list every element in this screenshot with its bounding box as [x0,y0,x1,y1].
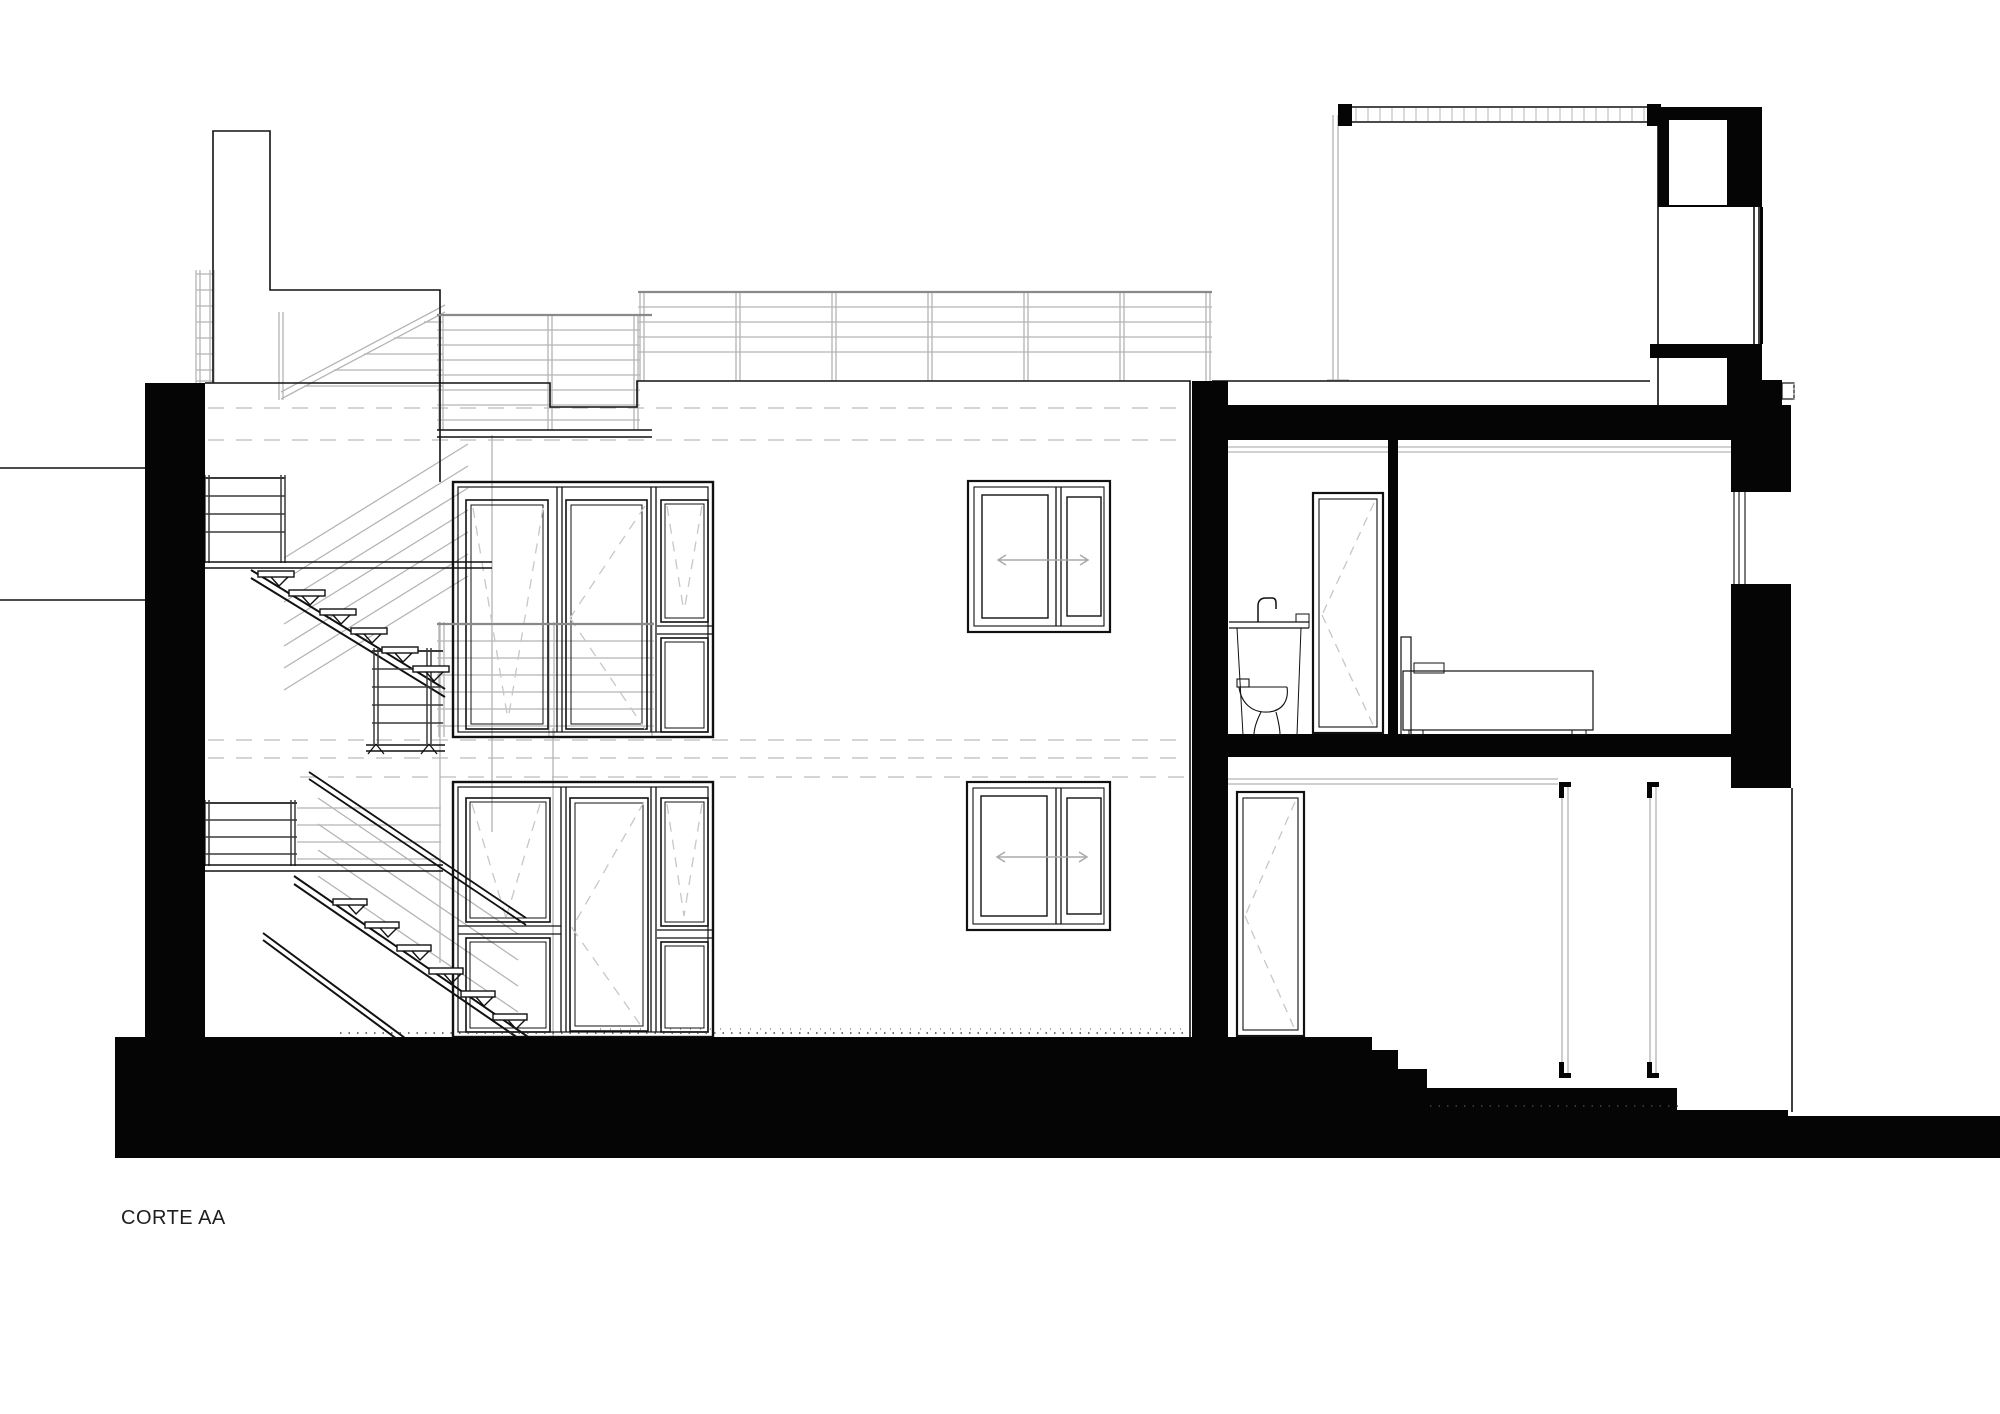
sink [1229,598,1309,735]
lower-landing-railing [205,800,297,866]
sliding-arrow-lower [997,852,1087,862]
ground-door-swing [1245,802,1295,1030]
dashed-level-lines [208,408,1188,777]
upper-volume-band [1650,344,1762,358]
ground-floor-door [1237,792,1304,1036]
drawing-title: CORTE AA [121,1206,226,1230]
balcony-slab [437,430,652,437]
bedroom-floor-band [1192,734,1791,757]
right-cut-wall [1192,381,1228,1037]
bedroom-right-wall-bottom [1731,584,1791,788]
upper-landing-railing [205,475,285,563]
left-cut-wall [145,383,205,1040]
bed [1401,637,1593,735]
bedroom-window-glazing [1734,492,1745,584]
bathroom-door-swing [1322,503,1374,727]
lower-window-opening-symbols [472,802,702,1030]
glass-panel-hooks [1559,782,1659,1078]
upper-volume-protrusion [1758,380,1782,407]
wall-niche-box [1782,383,1794,399]
roof-bracket-right [1647,104,1661,126]
upper-volume-window [1669,120,1727,205]
neighbor-lines [0,468,168,600]
roof-deck-ticks [1344,108,1644,121]
stringer-lower-flight [294,876,534,1049]
building-outlines [0,107,1794,1112]
background-gray-lines [196,115,1731,1085]
upper-volume-side [1760,207,1763,344]
bedroom-right-wall-top [1731,440,1791,492]
section-drawing [0,0,2000,1414]
bathroom-door [1313,493,1383,733]
far-stringer-lower-flight [263,933,409,1048]
chimney [213,131,440,482]
toilet [1237,679,1287,735]
upper-volume-jamb [1727,358,1762,408]
sliding-window-upper [968,481,1110,632]
roof-bracket-left [1338,104,1352,126]
sliding-arrow-upper [998,555,1088,565]
mid-landing-railing [372,648,443,744]
sliding-window-lower [967,782,1110,930]
bathroom-partition [1388,440,1398,734]
ground-mass [115,1037,2000,1158]
section-sheet: CORTE AA [0,0,2000,1414]
stringer-upper-flight [251,570,445,697]
bedroom-ceiling-band [1192,405,1791,440]
bed-platform [1403,671,1593,730]
